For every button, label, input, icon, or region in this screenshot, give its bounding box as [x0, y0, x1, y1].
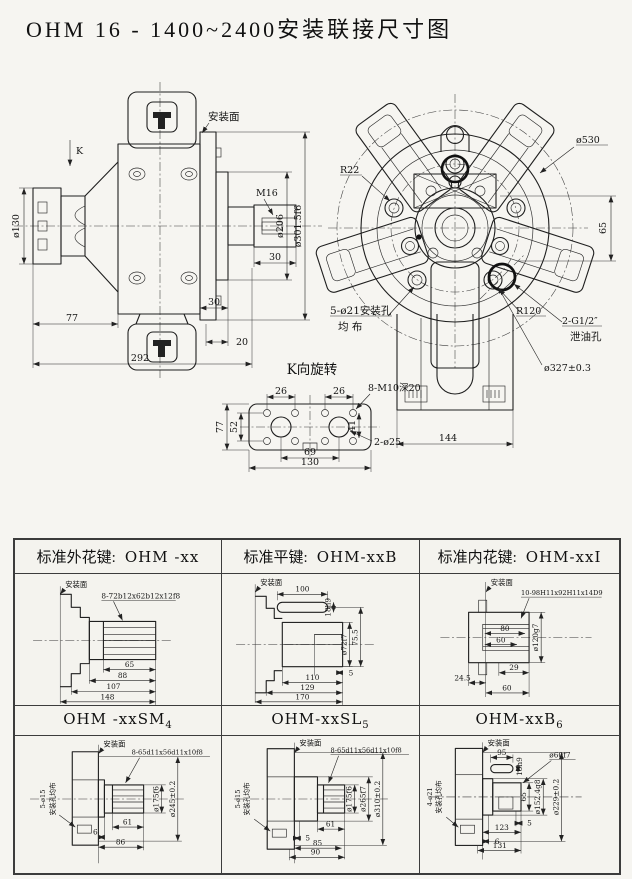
- dim-60: 60: [502, 683, 512, 692]
- dim: 85: [313, 839, 323, 848]
- label-holes-count: 4-ø21: [426, 787, 434, 806]
- dim-144: 144: [439, 433, 457, 444]
- dim-dia130: ø130: [11, 214, 22, 238]
- dim-dia3: ø310±0.2: [373, 781, 382, 817]
- dim: 88: [118, 671, 128, 680]
- dim-key-size: 18h9: [515, 757, 524, 776]
- spline-spec: 8-65d11x56d11x10f8: [331, 747, 402, 755]
- type-label: 标准内花键:: [438, 546, 517, 567]
- dim: 86: [116, 838, 126, 847]
- label-holes-count: 5-ø15: [234, 790, 242, 809]
- side-view: 安装面 K ø130 M16 ø206 ø301.5f6 30 30 20: [11, 82, 322, 378]
- dim-77-plate: 77: [215, 421, 226, 433]
- neck: [85, 162, 118, 292]
- label-8-m10: 8-M10深20: [368, 383, 421, 394]
- dim-26b: 26: [333, 386, 345, 397]
- k-rotation-view: K向旋转 26 26 8-M10深20 41 52: [215, 362, 421, 472]
- model-code: OHM -xx: [125, 548, 200, 566]
- drawing-sheet: OHM 16 - 1400~2400安装联接尺寸图: [0, 0, 632, 879]
- dim: 6: [93, 828, 98, 837]
- spline-spec: 8-72b12x62b12x12f8: [101, 591, 180, 600]
- dim: 170: [295, 692, 309, 701]
- type-label: 标准平键:: [244, 546, 308, 567]
- label-holes-note: 安装孔均布: [242, 782, 251, 815]
- drawing-ohm-xxsm4: 安装面 8-65d11x56d11x10f8 5-ø15 安装孔均布 ø175f…: [15, 736, 222, 873]
- header-spline-external: 标准外花键: OHM -xx: [15, 540, 222, 574]
- dim-dia1: ø152.4g8: [533, 779, 542, 814]
- dim-dia530: ø530: [576, 135, 600, 146]
- spline-spec: 8-65d11x56d11x10f8: [132, 749, 203, 757]
- dim-dia: ø120g7: [531, 623, 540, 651]
- model-code: OHM-xxI: [526, 548, 602, 566]
- bolt-section-icon: [153, 112, 171, 129]
- dim-bore80: 80: [500, 624, 510, 633]
- drawing-ohm-xxb: 安装面 100 18h9 ø72f7 75.5: [222, 574, 420, 706]
- mount-face-label: 安装面: [103, 740, 125, 749]
- header-flat-key: 标准平键: OHM-xxB: [222, 540, 420, 574]
- dim-bore60: 60: [496, 636, 506, 645]
- dim-52: 52: [229, 421, 240, 433]
- dim: 148: [100, 692, 114, 701]
- dim: 5: [305, 834, 310, 843]
- dim-dia2: ø245±0.2: [168, 781, 177, 817]
- label-drain-1: 2-G1/2″: [562, 316, 598, 327]
- mount-face-label: 安装面: [208, 110, 240, 123]
- dim-dia2: ø265f7: [359, 786, 368, 812]
- header-spline-internal: 标准内花键: OHM-xxI: [420, 540, 619, 574]
- bolt-hole: [272, 829, 286, 837]
- model-code: OHM-xxSL5: [271, 710, 369, 731]
- dim-30-shaft: 30: [269, 252, 281, 263]
- dim: 131: [493, 841, 507, 850]
- drawing-ohm-xx: 安装面 8-72b12x62b12x12f8 65 88 107 1: [15, 574, 222, 706]
- dim: 90: [311, 848, 321, 857]
- label-2-dia25: 2-ø25: [374, 437, 401, 448]
- dim: 129: [300, 683, 314, 692]
- dim-30-flange: 30: [208, 297, 220, 308]
- dim-dia1: ø175f6: [345, 786, 354, 812]
- header-ohm-xxsm4: OHM -xxSM4: [15, 706, 222, 736]
- dim-65: 65: [598, 222, 609, 234]
- k-arrow-label: K: [76, 146, 84, 157]
- label-mount-holes-1: 5-ø21安装孔: [330, 304, 392, 317]
- motor-body: [118, 144, 200, 314]
- label-drain-2: 泄油孔: [570, 330, 602, 343]
- spline-spec: 10-98H11x92H11x14D9: [521, 589, 603, 597]
- dim-5: 5: [349, 669, 354, 678]
- dim-dia327: ø327±0.3: [544, 363, 591, 374]
- dim-key-height: 75.5: [351, 629, 360, 646]
- dim-292: 292: [131, 353, 149, 364]
- mount-face-label: 安装面: [491, 578, 513, 587]
- dim-245: 24.5: [454, 673, 471, 682]
- label-holes-count: 5-ø15: [39, 790, 47, 809]
- dim-shaft-dia: ø60f7: [549, 751, 571, 760]
- bolt-hole: [77, 825, 91, 833]
- dim-dia206: ø206: [275, 214, 286, 238]
- dim-shaft-dia: ø72f7: [340, 634, 349, 655]
- mount-face-label: 安装面: [299, 739, 321, 748]
- dim: 110: [305, 673, 319, 682]
- label-holes-note: 安装孔均布: [434, 780, 443, 814]
- dim-29: 29: [509, 663, 519, 672]
- k-view-title: K向旋转: [287, 362, 338, 378]
- dim-130: 130: [301, 457, 319, 468]
- dim-dia1: ø175f6: [152, 786, 161, 812]
- model-code: OHM-xxB6: [475, 710, 563, 731]
- key: [277, 602, 327, 612]
- drawing-ohm-xxb6: 安装面 95 18h9 ø60f7 4-ø21 安装孔均布: [420, 736, 619, 873]
- dim-5: 5: [527, 819, 532, 828]
- dim: 107: [106, 682, 120, 691]
- spec-table: 标准外花键: OHM -xx 标准平键: OHM-xxB 标准内花键: OHM-…: [13, 538, 621, 875]
- label-mount-holes-2: 均 布: [338, 321, 362, 333]
- mount-face-label: 安装面: [260, 578, 282, 587]
- main-drawing: 安装面 K ø130 M16 ø206 ø301.5f6 30 30 20: [0, 56, 632, 520]
- key: [491, 765, 513, 773]
- drawing-ohm-xxsl5: 安装面 8-65d11x56d11x10f8 5-ø15 安装孔均布 ø175f…: [222, 736, 420, 873]
- dim: 65: [125, 660, 135, 669]
- model-code: OHM -xxSM4: [63, 710, 173, 731]
- header-ohm-xxsl5: OHM-xxSL5: [222, 706, 420, 736]
- header-ohm-xxb6: OHM-xxB6: [420, 706, 619, 736]
- drawing-title: OHM 16 - 1400~2400安装联接尺寸图: [26, 12, 452, 44]
- model-code: OHM-xxB: [317, 548, 398, 566]
- dim-65: 65: [519, 792, 528, 802]
- dim-key-length: 100: [295, 585, 309, 594]
- dim-r22: R22: [340, 165, 359, 176]
- dim-26a: 26: [275, 386, 287, 397]
- dim: 61: [326, 820, 335, 829]
- dim-m16: M16: [256, 188, 278, 199]
- mount-face-label: 安装面: [488, 738, 510, 747]
- bolt-hole: [460, 825, 474, 833]
- hub: [98, 780, 104, 817]
- dim: 61: [123, 818, 132, 827]
- dim-20: 20: [236, 337, 248, 348]
- dim-41: 41: [347, 420, 358, 432]
- dim: 123: [495, 823, 509, 832]
- label-holes-note: 安装孔均布: [48, 782, 57, 815]
- front-view: R22 ø530 65 5-ø21安装孔 均 布 R120 2-G1/2″ 泄油…: [314, 94, 616, 448]
- dim-dia301: ø301.5f6: [293, 205, 304, 247]
- type-label: 标准外花键:: [37, 546, 116, 567]
- dim-dia2: ø229±0.2: [551, 779, 560, 815]
- mount-face-label: 安装面: [65, 580, 87, 589]
- dim-77: 77: [66, 313, 78, 324]
- drawing-ohm-xxi: 安装面 10-98H11x92H11x14D9 80 60 ø120g7: [420, 574, 619, 706]
